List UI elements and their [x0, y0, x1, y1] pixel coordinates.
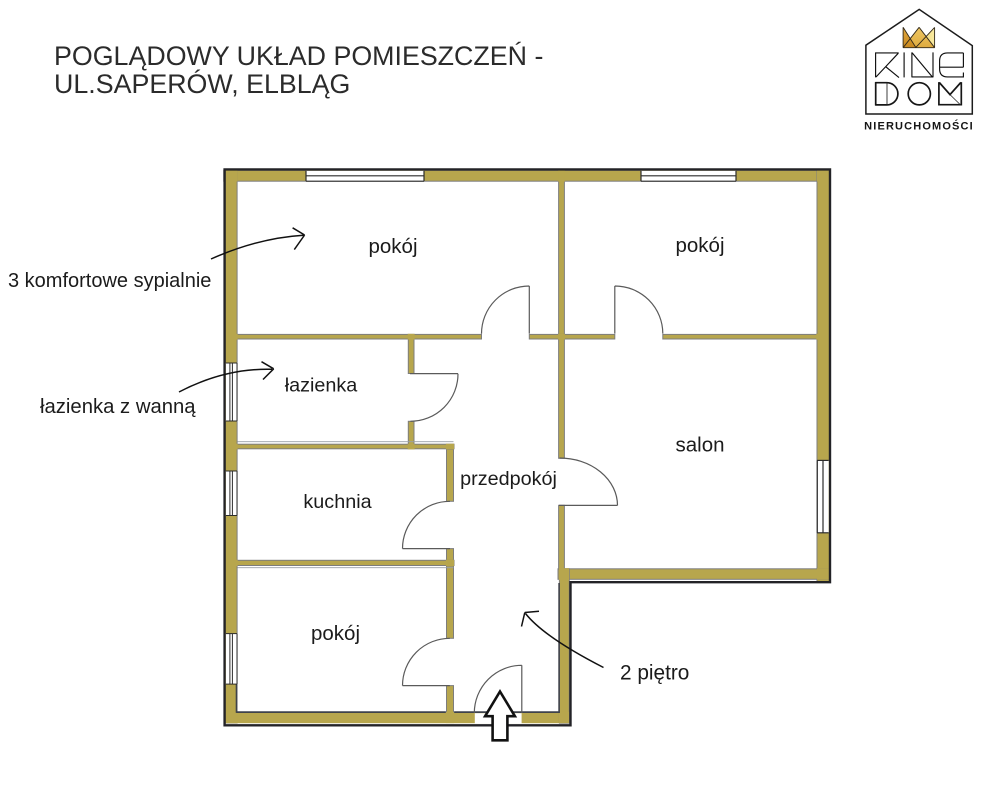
svg-text:POGLĄDOWY UKŁAD POMIESZCZEŃ -: POGLĄDOWY UKŁAD POMIESZCZEŃ - — [54, 41, 543, 71]
svg-text:pokój: pokój — [368, 235, 417, 258]
svg-text:kuchnia: kuchnia — [303, 491, 371, 513]
svg-text:salon: salon — [675, 434, 724, 457]
svg-text:2 piętro: 2 piętro — [620, 662, 689, 685]
svg-text:pokój: pokój — [311, 622, 360, 645]
svg-text:NIERUCHOMOŚCI: NIERUCHOMOŚCI — [864, 120, 974, 133]
svg-text:pokój: pokój — [675, 234, 724, 257]
svg-text:3 komfortowe sypialnie: 3 komfortowe sypialnie — [8, 270, 211, 292]
svg-text:przedpokój: przedpokój — [460, 468, 557, 490]
svg-text:łazienka: łazienka — [285, 375, 358, 397]
svg-text:UL.SAPERÓW, ELBLĄG: UL.SAPERÓW, ELBLĄG — [54, 68, 350, 99]
svg-text:łazienka z wanną: łazienka z wanną — [40, 396, 196, 418]
